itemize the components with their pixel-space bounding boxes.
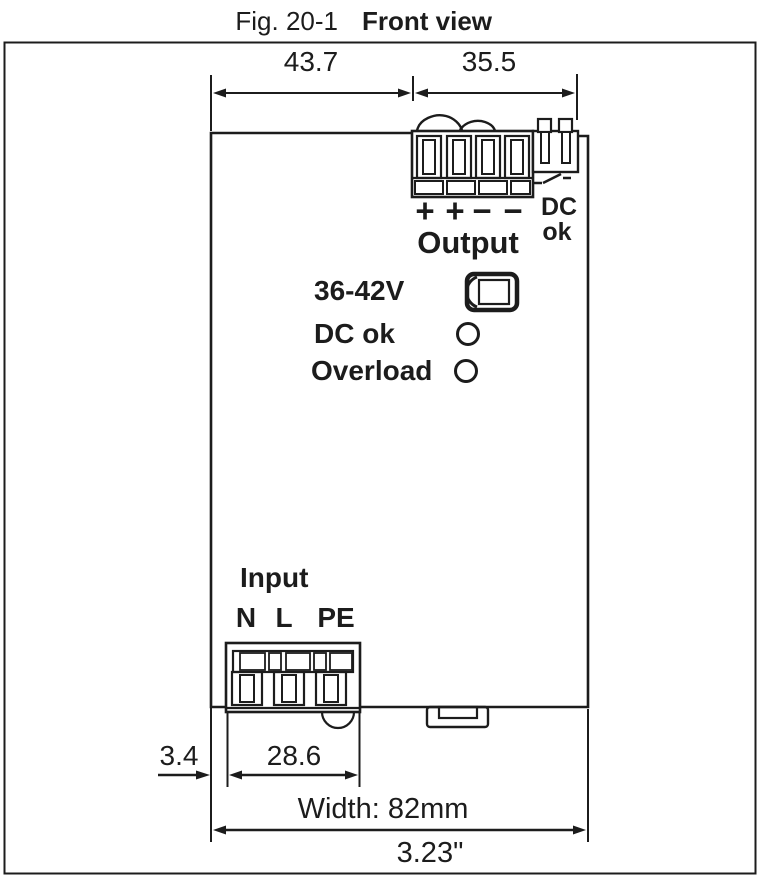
- dc-ok-led-label: DC ok: [314, 318, 395, 349]
- input-terminal-label: N: [236, 602, 256, 633]
- dim-43-7-label: 43.7: [284, 46, 339, 77]
- dim-28-6-label: 28.6: [267, 740, 322, 771]
- arrowhead: [196, 771, 210, 780]
- figure-number-label: Fig. 20-1: [235, 6, 338, 36]
- arrowhead: [229, 771, 242, 780]
- arrowhead: [213, 89, 226, 98]
- voltage-adjust-potentiometer: [467, 274, 517, 310]
- input-terminal-block: [226, 643, 360, 728]
- pot-slot: [479, 280, 509, 304]
- wire-bump: [460, 121, 495, 131]
- dc-ok-contact-label: DC: [541, 193, 577, 221]
- clamp: [240, 653, 265, 670]
- figure-page: Fig. 20-1 Front view 43.7 35.5: [0, 0, 759, 881]
- output-terminal-block: [412, 115, 533, 197]
- input-terminal-label: PE: [317, 602, 354, 633]
- clamp: [269, 653, 281, 670]
- input-label: Input: [240, 562, 308, 593]
- dc-ok-contact-block: DC ok: [533, 119, 578, 246]
- front-view-diagram: Fig. 20-1 Front view 43.7 35.5: [0, 0, 759, 881]
- wire-bump: [417, 115, 462, 131]
- screw-head: [559, 119, 572, 132]
- figure-border: [5, 43, 756, 874]
- output-terminal-label: +: [445, 192, 464, 229]
- clamp: [286, 653, 310, 670]
- dim-width-mm-label: Width: 82mm: [298, 793, 469, 825]
- screw: [562, 132, 570, 163]
- din-rail-tab: [427, 707, 488, 727]
- input-terminal-label: L: [275, 602, 292, 633]
- bottom-dimensions: 3.4 28.6 Width: 82mm 3.23": [158, 707, 588, 869]
- arrowhead: [415, 89, 428, 98]
- overload-led-icon: [456, 361, 477, 382]
- dim-3-4-label: 3.4: [160, 740, 199, 771]
- output-terminal-label: −: [503, 192, 522, 229]
- figure-title-label: Front view: [362, 6, 493, 36]
- wire-hole-arc: [322, 712, 354, 728]
- output-labels: + + − − Output: [415, 192, 522, 260]
- output-label: Output: [417, 225, 519, 260]
- arrowhead: [345, 771, 358, 780]
- top-dimensions: 43.7 35.5: [211, 46, 577, 131]
- relay-contact-icon: [534, 174, 571, 183]
- arrowhead: [398, 89, 411, 98]
- clamp: [330, 653, 352, 670]
- arrowhead: [573, 826, 586, 835]
- screw: [541, 132, 549, 163]
- clamp: [314, 653, 326, 670]
- dc-ok-contact-label: ok: [542, 218, 571, 246]
- input-labels: Input N L PE: [236, 562, 355, 633]
- output-terminal-label: +: [415, 192, 434, 229]
- tab-notch: [439, 707, 477, 718]
- front-panel: 36-42V DC ok Overload: [311, 274, 517, 386]
- psu-body-outline: [211, 133, 588, 707]
- arrowhead: [213, 826, 226, 835]
- dim-35-5-label: 35.5: [462, 46, 517, 77]
- output-terminal-label: −: [472, 192, 491, 229]
- voltage-range-label: 36-42V: [314, 275, 405, 306]
- dc-ok-led-icon: [458, 324, 479, 345]
- figure-title: Fig. 20-1 Front view: [235, 6, 492, 36]
- overload-led-label: Overload: [311, 355, 432, 386]
- contact-block-housing: [533, 131, 578, 172]
- screw-head: [538, 119, 551, 132]
- dim-width-inches-label: 3.23": [397, 837, 464, 869]
- arrowhead: [562, 89, 575, 98]
